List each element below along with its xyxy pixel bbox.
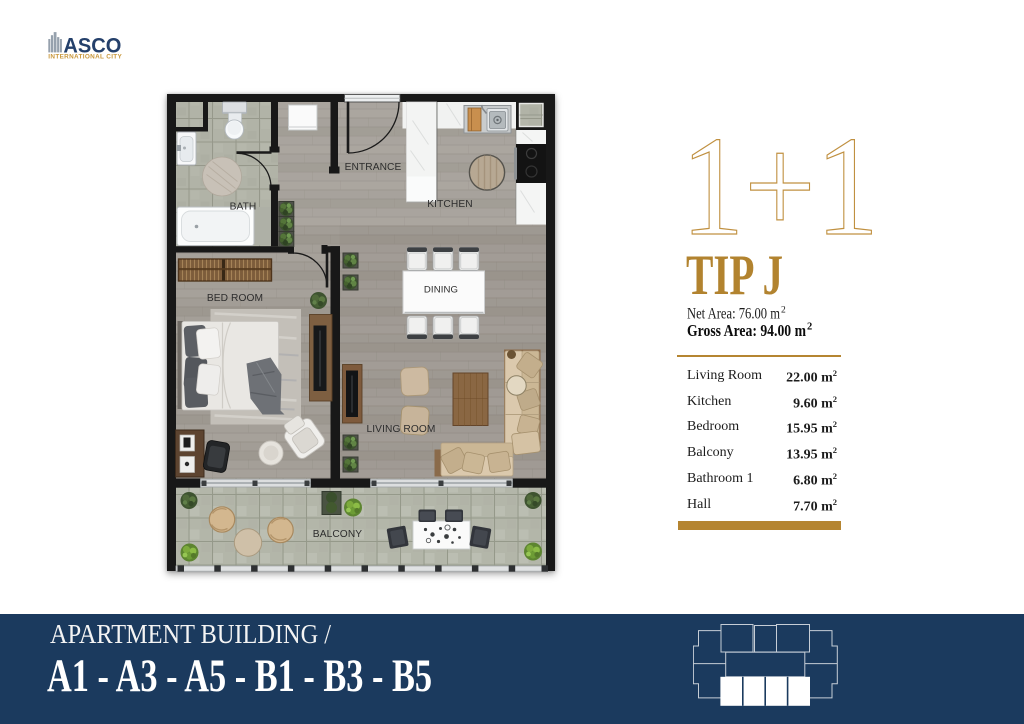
svg-text:A1 - A3 - A5 - B1 - B3 - B5: A1 - A3 - A5 - B1 - B3 - B5	[47, 651, 432, 699]
svg-text:BATH: BATH	[229, 201, 256, 212]
svg-text:Net Area: 76.00 m: Net Area: 76.00 m	[687, 306, 780, 323]
svg-text:BED ROOM: BED ROOM	[206, 293, 262, 304]
svg-text:TIP J: TIP J	[686, 246, 783, 298]
svg-text:LIVING ROOM: LIVING ROOM	[366, 424, 435, 435]
svg-text:APARTMENT BUILDING /: APARTMENT BUILDING /	[50, 619, 331, 649]
svg-text:ENTRANCE: ENTRANCE	[344, 162, 401, 173]
svg-text:BALCONY: BALCONY	[312, 529, 361, 540]
svg-text:Gross Area: 94.00 m: Gross Area: 94.00 m	[687, 321, 806, 339]
svg-text:INTERNATIONAL CITY: INTERNATIONAL CITY	[48, 53, 122, 60]
svg-text:1+1: 1+1	[685, 120, 879, 245]
svg-text:2: 2	[781, 306, 786, 316]
svg-text:KITCHEN: KITCHEN	[427, 199, 472, 210]
svg-text:DINING: DINING	[423, 284, 457, 295]
svg-text:2: 2	[807, 322, 812, 333]
